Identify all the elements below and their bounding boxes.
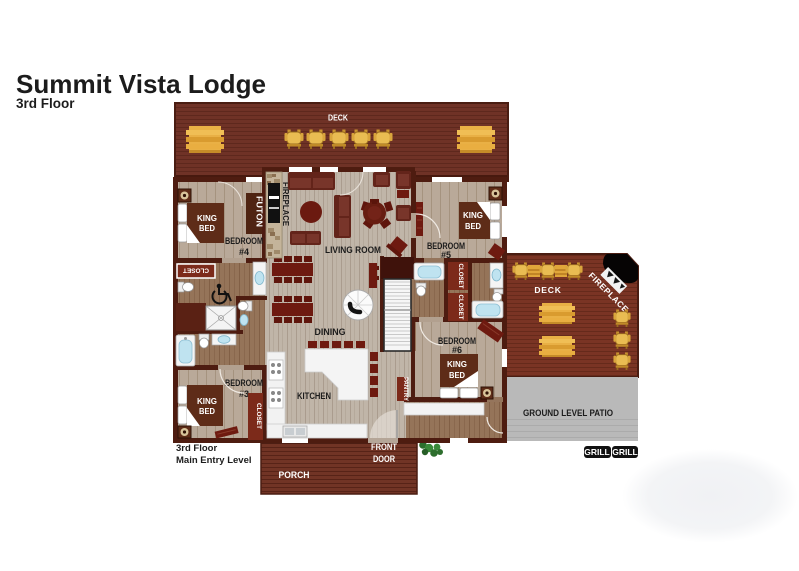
svg-text:BED: BED	[199, 223, 215, 233]
svg-text:FRONT: FRONT	[371, 442, 397, 452]
svg-text:GRILL: GRILL	[612, 447, 638, 457]
svg-text:CLOSET: CLOSET	[255, 403, 262, 429]
svg-text:GROUND LEVEL PATIO: GROUND LEVEL PATIO	[523, 408, 613, 419]
svg-text:BED: BED	[449, 370, 465, 380]
svg-text:LIVING ROOM: LIVING ROOM	[325, 245, 381, 256]
svg-text:KITCHEN: KITCHEN	[297, 391, 331, 402]
svg-text:BEDROOM: BEDROOM	[225, 378, 263, 388]
svg-text:GRILL: GRILL	[584, 447, 610, 457]
svg-text:DECK: DECK	[328, 113, 349, 123]
svg-text:BED: BED	[199, 406, 215, 416]
svg-text:CLOSET: CLOSET	[183, 267, 209, 274]
svg-text:DOOR: DOOR	[373, 454, 395, 464]
svg-text:PANTRY: PANTRY	[402, 377, 408, 401]
svg-text:#5: #5	[441, 250, 451, 260]
svg-text:KING: KING	[197, 213, 217, 223]
svg-text:BED: BED	[465, 221, 481, 231]
svg-text:Summit Vista Lodge: Summit Vista Lodge	[16, 69, 266, 99]
svg-text:KING: KING	[447, 359, 467, 369]
svg-text:KING: KING	[463, 210, 483, 220]
svg-text:BEDROOM: BEDROOM	[225, 236, 263, 246]
svg-text:KING: KING	[197, 396, 217, 406]
svg-text:#3: #3	[239, 389, 249, 399]
svg-text:#4: #4	[239, 247, 249, 257]
svg-text:#6: #6	[452, 345, 462, 355]
svg-text:CLOSET: CLOSET	[457, 295, 464, 320]
svg-text:PORCH: PORCH	[279, 470, 310, 481]
svg-text:CLOSET: CLOSET	[457, 264, 464, 289]
svg-text:FUTON: FUTON	[255, 196, 264, 227]
svg-text:DECK: DECK	[534, 285, 561, 295]
svg-text:DINING: DINING	[315, 327, 346, 338]
svg-text:3rd Floor: 3rd Floor	[176, 443, 217, 454]
svg-text:3rd Floor: 3rd Floor	[16, 96, 75, 111]
svg-text:Main Entry Level: Main Entry Level	[176, 455, 252, 466]
